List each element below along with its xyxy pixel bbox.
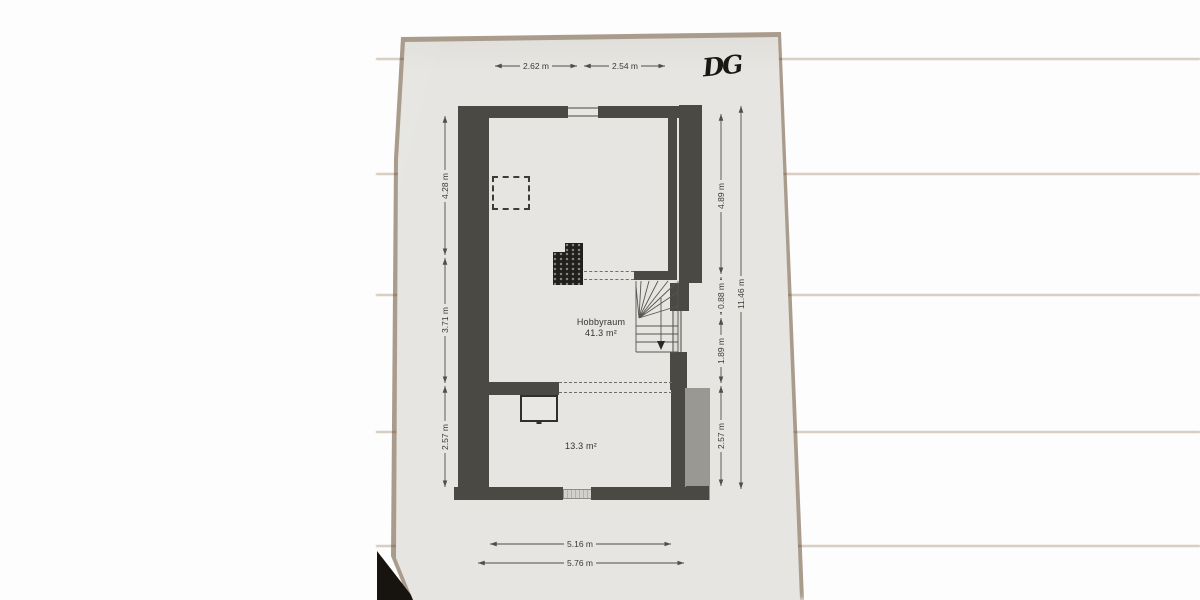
room-name-hobbyraum: Hobbyraum: [577, 317, 625, 327]
dim-right-3: 1.89 m: [716, 335, 726, 367]
dim-left-1: 4.28 m: [440, 170, 450, 202]
dim-left-2: 3.71 m: [440, 304, 450, 336]
dim-left-3: 2.57 m: [440, 421, 450, 453]
screenshot: 2.62 m 2.54 m 4.28 m 3.71 m 2.57 m 4.89 …: [0, 0, 1200, 600]
dim-right-2: 0.88 m: [716, 280, 726, 312]
dim-bottom-1: 5.16 m: [564, 539, 596, 549]
dimension-lines: [0, 0, 1200, 600]
dim-top-1: 2.62 m: [520, 61, 552, 71]
room-area-small: 13.3 m²: [565, 441, 597, 451]
dim-right-total: 11.46 m: [736, 276, 746, 312]
room-area-hobbyraum: 41.3 m²: [585, 328, 617, 338]
dim-top-2: 2.54 m: [609, 61, 641, 71]
floor-label-handwritten: DG: [701, 50, 743, 83]
dim-right-1: 4.89 m: [716, 180, 726, 212]
dim-bottom-2: 5.76 m: [564, 558, 596, 568]
dim-right-4: 2.57 m: [716, 420, 726, 452]
